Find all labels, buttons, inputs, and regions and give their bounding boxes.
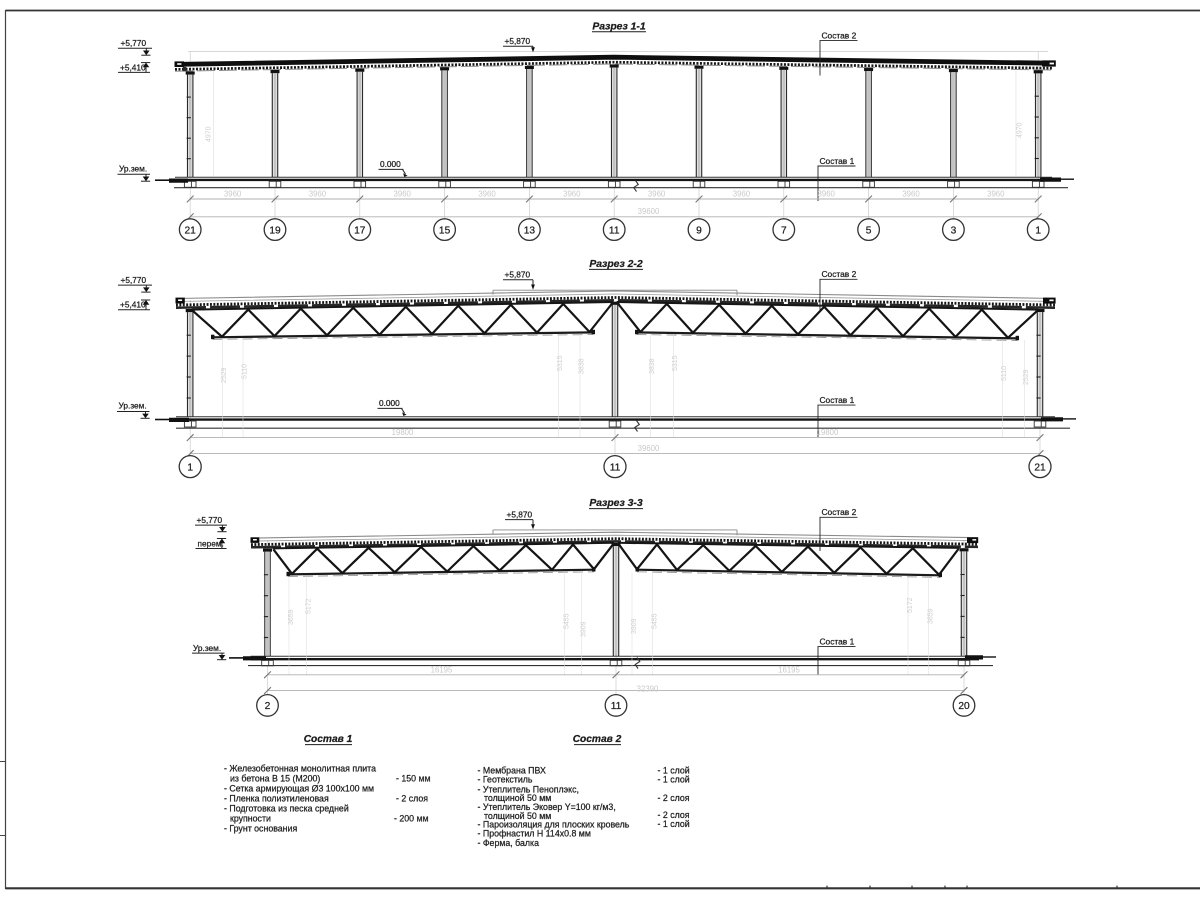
svg-text:5315: 5315 xyxy=(557,355,564,371)
svg-text:Состав 2: Состав 2 xyxy=(573,734,622,745)
svg-text:3960: 3960 xyxy=(818,190,836,199)
svg-text:Состав 1: Состав 1 xyxy=(820,636,855,646)
svg-text:3960: 3960 xyxy=(987,190,1005,199)
svg-text:21: 21 xyxy=(185,225,197,236)
svg-text:39600: 39600 xyxy=(638,444,660,453)
svg-text:39600: 39600 xyxy=(638,207,660,216)
svg-text:3960: 3960 xyxy=(309,190,327,199)
svg-text:Ур.зем.: Ур.зем. xyxy=(119,401,147,411)
svg-text:Состав 2: Состав 2 xyxy=(822,269,857,279)
svg-text:- Геотекстиль: - Геотекстиль xyxy=(478,775,533,785)
svg-text:Состав 1: Состав 1 xyxy=(304,734,353,745)
svg-text:2529: 2529 xyxy=(1023,369,1030,385)
svg-text:- Профнастил Н 114х0.8 мм: - Профнастил Н 114х0.8 мм xyxy=(478,828,591,838)
svg-text:3960: 3960 xyxy=(733,190,751,199)
svg-text:Разрез 1-1: Разрез 1-1 xyxy=(592,21,646,32)
svg-text:7: 7 xyxy=(781,225,787,236)
svg-text:+5,770: +5,770 xyxy=(197,515,223,525)
svg-text:3838: 3838 xyxy=(649,358,656,374)
svg-text:16195: 16195 xyxy=(431,666,453,675)
svg-text:3659: 3659 xyxy=(288,609,295,625)
svg-text:3960: 3960 xyxy=(478,190,496,199)
svg-text:1: 1 xyxy=(1035,225,1041,236)
svg-text:3960: 3960 xyxy=(394,190,412,199)
svg-text:+5,870: +5,870 xyxy=(507,509,533,519)
svg-text:- 2 слоя: - 2 слоя xyxy=(658,793,690,803)
svg-text:1: 1 xyxy=(187,462,193,473)
svg-text:11: 11 xyxy=(610,462,621,473)
svg-text:2: 2 xyxy=(265,701,271,712)
svg-text:+5,770: +5,770 xyxy=(121,38,147,48)
svg-text:- 2 слоя: - 2 слоя xyxy=(396,794,428,804)
svg-text:- Железобетонная монолитная п: - Железобетонная монолитная плита xyxy=(224,764,376,774)
svg-text:5110: 5110 xyxy=(242,364,249,379)
svg-text:3960: 3960 xyxy=(563,190,581,199)
svg-text:15: 15 xyxy=(439,225,451,236)
svg-text:Состав 1: Состав 1 xyxy=(820,395,855,405)
svg-text:Разрез 2-2: Разрез 2-2 xyxy=(589,259,643,270)
svg-text:5455: 5455 xyxy=(564,613,571,629)
svg-text:5172: 5172 xyxy=(306,598,313,614)
svg-text:3859: 3859 xyxy=(928,608,935,624)
svg-text:Состав 2: Состав 2 xyxy=(822,507,857,517)
svg-text:из бетона В 15 (М200): из бетона В 15 (М200) xyxy=(230,774,320,784)
svg-text:- Пленка полиэтиленовая: - Пленка полиэтиленовая xyxy=(224,794,329,804)
svg-text:17: 17 xyxy=(354,225,366,236)
svg-text:5: 5 xyxy=(866,225,872,236)
svg-text:2529: 2529 xyxy=(221,367,228,383)
svg-text:- 1 слой: - 1 слой xyxy=(658,819,690,829)
svg-text:21: 21 xyxy=(1034,462,1046,473)
svg-text:19800: 19800 xyxy=(817,428,839,437)
svg-text:+5,870: +5,870 xyxy=(505,270,531,280)
svg-text:19: 19 xyxy=(269,225,281,236)
svg-text:9: 9 xyxy=(696,225,702,236)
svg-text:3909: 3909 xyxy=(581,621,588,637)
svg-text:32390: 32390 xyxy=(637,684,659,693)
svg-text:перем.: перем. xyxy=(198,538,224,548)
svg-text:5315: 5315 xyxy=(672,355,679,371)
svg-text:0.000: 0.000 xyxy=(379,398,400,408)
svg-text:Ур.зем.: Ур.зем. xyxy=(193,643,221,653)
svg-text:Разрез 3-3: Разрез 3-3 xyxy=(589,498,643,509)
svg-text:- Подготовка из песка средней: - Подготовка из песка средней xyxy=(224,804,349,814)
svg-text:+5,770: +5,770 xyxy=(121,275,147,285)
svg-text:5110: 5110 xyxy=(1001,366,1008,381)
svg-text:крупности: крупности xyxy=(230,814,271,824)
svg-text:- 1 слой: - 1 слой xyxy=(658,775,690,785)
svg-text:- 200 мм: - 200 мм xyxy=(394,814,429,824)
svg-text:Состав 2: Состав 2 xyxy=(822,30,857,40)
svg-text:- Грунт основания: - Грунт основания xyxy=(224,824,297,834)
svg-text:3960: 3960 xyxy=(648,190,666,199)
svg-text:11: 11 xyxy=(611,701,622,712)
svg-text:3960: 3960 xyxy=(902,190,920,199)
svg-text:3: 3 xyxy=(951,225,957,236)
svg-text:- 150 мм: - 150 мм xyxy=(396,774,431,784)
svg-text:4970: 4970 xyxy=(1017,122,1024,138)
svg-text:Состав 1: Состав 1 xyxy=(820,156,855,166)
svg-text:5172: 5172 xyxy=(907,597,914,613)
svg-text:20: 20 xyxy=(958,701,970,712)
svg-text:5455: 5455 xyxy=(652,613,659,629)
svg-text:- Сетка армирующая Ø3 100х100: - Сетка армирующая Ø3 100х100 мм xyxy=(224,784,374,794)
svg-text:+5,870: +5,870 xyxy=(505,36,531,46)
svg-text:3909: 3909 xyxy=(631,618,638,634)
svg-text:11: 11 xyxy=(609,225,620,236)
svg-text:+5,410: +5,410 xyxy=(120,300,146,310)
svg-text:0.000: 0.000 xyxy=(380,159,401,169)
svg-text:3838: 3838 xyxy=(579,358,586,374)
svg-text:+5,410: +5,410 xyxy=(120,63,146,73)
svg-text:3960: 3960 xyxy=(224,190,242,199)
svg-text:19800: 19800 xyxy=(392,428,414,437)
svg-text:Ур.зем.: Ур.зем. xyxy=(119,163,147,173)
svg-text:13: 13 xyxy=(524,225,536,236)
svg-text:4970: 4970 xyxy=(206,126,213,142)
svg-text:- Ферма, балка: - Ферма, балка xyxy=(478,838,540,848)
svg-text:16195: 16195 xyxy=(778,666,800,675)
